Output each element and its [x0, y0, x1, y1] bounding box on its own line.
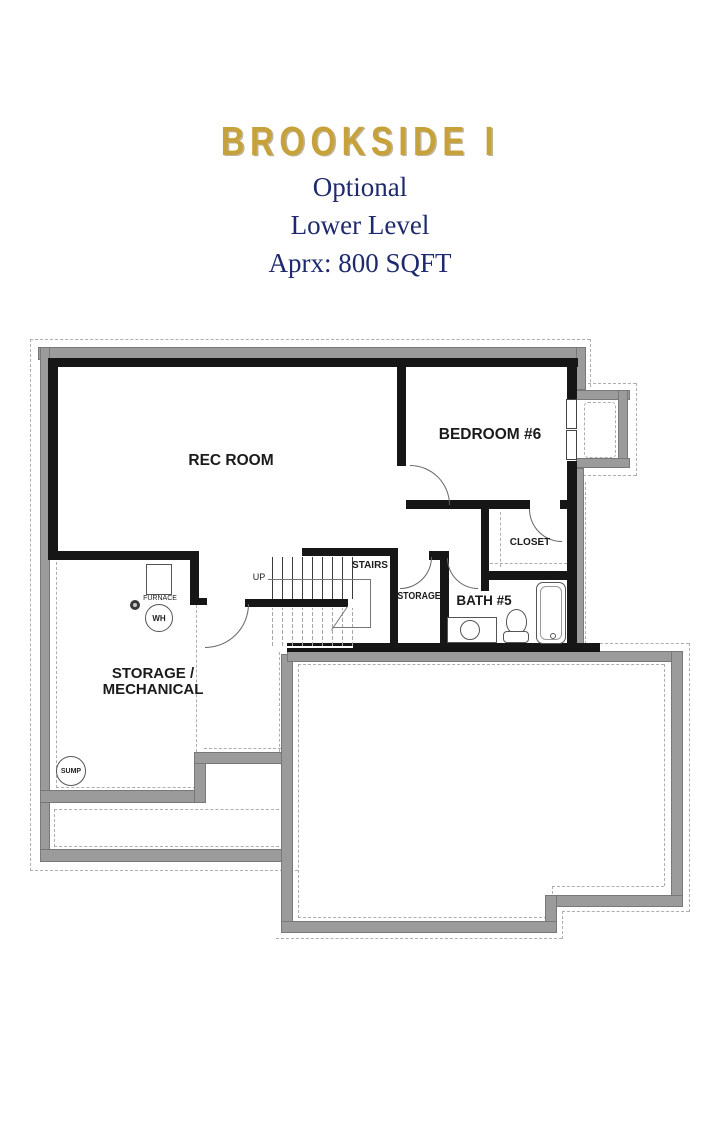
stair-rail	[333, 627, 371, 628]
foundation-wall	[40, 790, 206, 803]
floor-plan-page: BROOKSIDE I Optional Lower Level Aprx: 8…	[0, 0, 720, 1130]
room-label-rec-room: REC ROOM	[146, 453, 316, 470]
window-well-dashed-outline	[636, 383, 637, 476]
foundation-dashed-outline	[562, 911, 563, 939]
stair-treads	[272, 557, 353, 599]
room-label-storage: STORAGE	[395, 592, 443, 603]
door-arc-storage	[400, 557, 432, 589]
room-label-storage-mechanical: STORAGE / MECHANICAL	[63, 666, 243, 698]
room-label-closet: CLOSET	[495, 538, 565, 549]
wall	[481, 571, 576, 580]
foundation-wall	[40, 849, 293, 862]
foundation-dashed-outline	[600, 643, 689, 644]
foundation-dashed-outline	[30, 870, 298, 871]
wall	[567, 358, 577, 399]
wall	[190, 551, 199, 605]
room-label-stairs: STAIRS	[344, 561, 396, 572]
wall	[567, 461, 577, 651]
unfinished-area-dashed	[279, 652, 280, 752]
wall	[48, 551, 196, 560]
foundation-wall	[671, 651, 683, 907]
stair-rail	[370, 579, 371, 628]
crawlspace-dashed-inset	[54, 809, 284, 847]
bathtub-inner	[540, 586, 562, 640]
wall	[48, 358, 578, 367]
plan-subtitle-level: Lower Level	[0, 210, 720, 241]
window-well-wall	[576, 458, 630, 468]
bath-sink	[460, 620, 480, 640]
stair-rail	[268, 579, 371, 580]
foundation-wall	[281, 921, 557, 933]
wall	[397, 359, 406, 466]
foundation-dashed-outline	[562, 911, 689, 912]
plan-title: BROOKSIDE I	[72, 118, 648, 165]
unexcavated-dashed-inset	[552, 886, 664, 887]
unexcavated-dashed-inset	[298, 917, 552, 918]
unfinished-area-dashed	[204, 748, 281, 749]
window-well-wall	[618, 390, 628, 468]
foundation-dashed-outline	[689, 643, 690, 912]
window-well-dashed-inset	[584, 402, 616, 458]
foundation-wall	[576, 347, 586, 390]
foundation-dashed-outline	[30, 339, 590, 340]
bathtub-drain	[550, 633, 556, 639]
foundation-wall	[545, 895, 683, 907]
room-label-storage-mechanical-line1: STORAGE /	[63, 666, 243, 682]
door-arc-bath	[447, 558, 478, 589]
foundation-wall	[287, 651, 683, 662]
wall	[560, 500, 574, 509]
foundation-wall	[194, 752, 293, 764]
water-heater: WH	[145, 604, 173, 632]
foundation-dashed-outline	[30, 339, 31, 871]
closet-shelf-dashed	[490, 563, 567, 564]
toilet-tank	[503, 631, 529, 643]
room-label-storage-mechanical-line2: MECHANICAL	[63, 682, 243, 698]
window	[566, 399, 577, 429]
room-label-bath5: BATH #5	[444, 594, 524, 609]
unexcavated-dashed-inset	[664, 664, 665, 886]
foundation-dashed-outline	[585, 482, 586, 644]
foundation-dashed-outline	[276, 938, 562, 939]
foundation-dashed-outline	[590, 339, 591, 387]
unexcavated-dashed-inset	[298, 664, 664, 665]
plan-subtitle-optional: Optional	[0, 172, 720, 203]
stair-half-wall	[245, 599, 348, 607]
furnace-unit	[146, 564, 172, 595]
window-well-dashed-outline	[578, 475, 636, 476]
plan-subtitle-sqft: Aprx: 800 SQFT	[0, 248, 720, 279]
foundation-wall	[576, 468, 584, 652]
unfinished-area-dashed	[56, 787, 196, 788]
unfinished-area-dashed	[56, 562, 57, 788]
wall	[48, 358, 58, 554]
wall	[302, 548, 392, 556]
foundation-wall	[281, 654, 293, 933]
stairs-up-label: UP	[249, 573, 269, 583]
window-well-dashed-outline	[578, 383, 636, 384]
furnace-label: FURNACE	[138, 595, 182, 603]
door-arc-storage-mechanical	[205, 604, 249, 648]
room-label-bedroom6: BEDROOM #6	[410, 427, 570, 444]
sump-pump: SUMP	[56, 756, 86, 786]
unexcavated-dashed-inset	[298, 664, 299, 918]
door-arc-bedroom	[410, 465, 450, 505]
